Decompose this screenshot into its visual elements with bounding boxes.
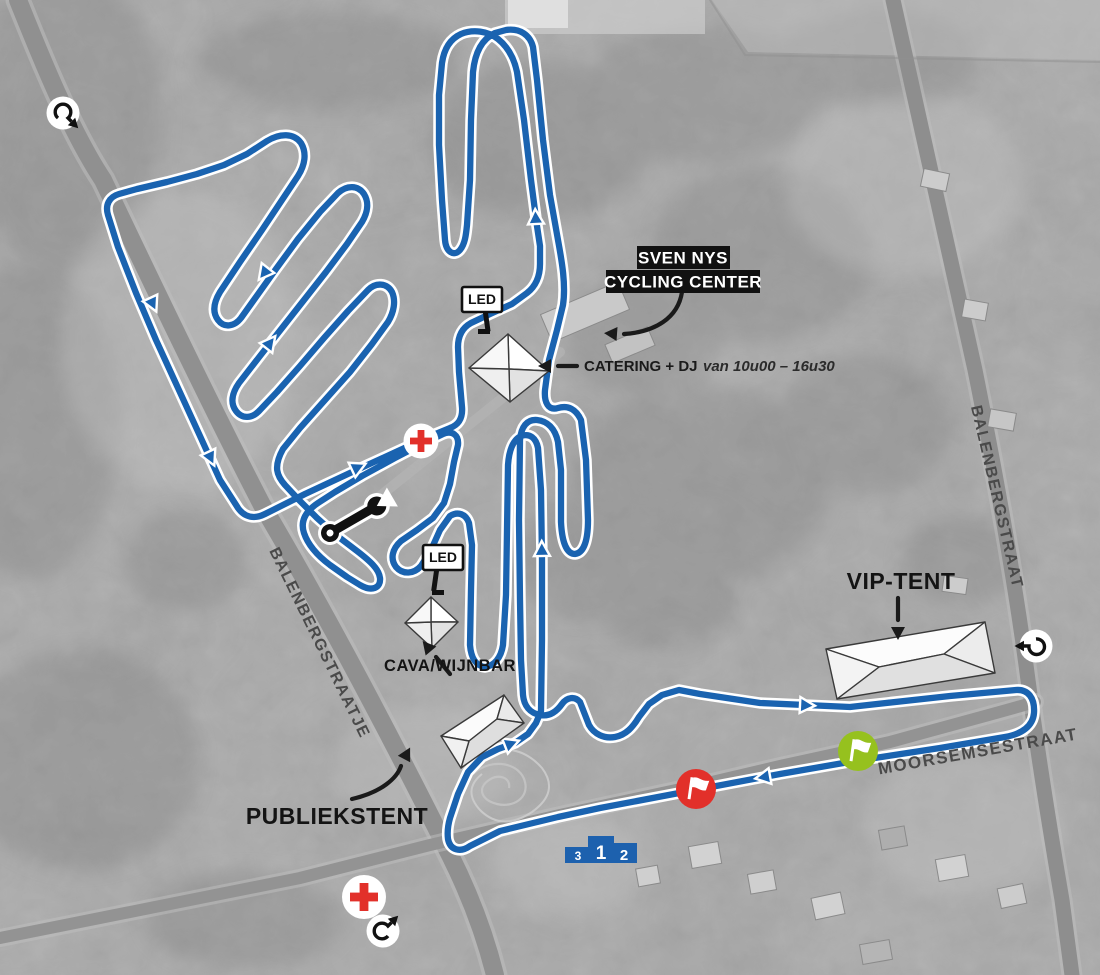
- red-cross-icon: [342, 875, 386, 919]
- course-map: BALENBERGSTRAATJE BALENBERGSTRAAT MOORSE…: [0, 0, 1100, 975]
- podium-third: 3: [575, 849, 582, 863]
- podium-first: 1: [596, 843, 607, 864]
- led-sign-text: LED: [468, 291, 496, 307]
- bright-patch: [508, 0, 568, 28]
- catering-label: CATERING + DJ: [584, 358, 698, 375]
- venue-label-line2: CYCLING CENTER: [604, 273, 762, 292]
- venue-label-line1: SVEN NYS: [638, 249, 728, 268]
- vip-tent-label: VIP-TENT: [847, 568, 956, 594]
- red-flag-icon: [676, 769, 716, 809]
- publiekstent-label: PUBLIEKSTENT: [246, 803, 428, 829]
- catering-hours: van 10u00 – 16u30: [703, 358, 835, 375]
- cava-label: CAVA/WIJNBAR: [384, 657, 516, 675]
- red-cross-icon: [404, 424, 439, 459]
- green-flag-icon: [838, 731, 878, 771]
- map-canvas: BALENBERGSTRAATJE BALENBERGSTRAAT MOORSE…: [0, 0, 1100, 975]
- podium-second: 2: [620, 847, 628, 864]
- led-sign-text: LED: [429, 549, 457, 565]
